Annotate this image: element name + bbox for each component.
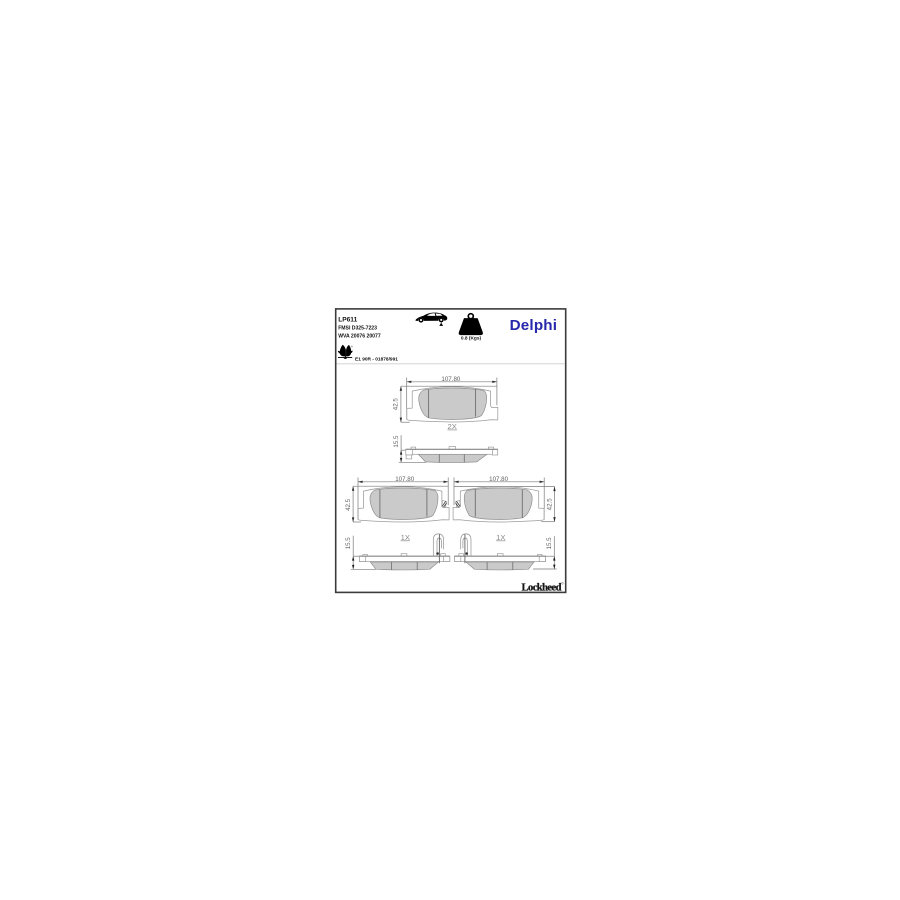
svg-text:FMSI D325-7223: FMSI D325-7223 [338, 326, 377, 332]
svg-text:E1 90R - 01878/991: E1 90R - 01878/991 [355, 357, 398, 363]
svg-text:42.5: 42.5 [546, 498, 553, 511]
svg-text:15.5: 15.5 [393, 435, 400, 448]
svg-text:15.5: 15.5 [345, 537, 352, 550]
svg-text:42.5: 42.5 [392, 398, 399, 411]
svg-text:LP611: LP611 [338, 317, 357, 324]
svg-text:0.8 (Kgs): 0.8 (Kgs) [461, 335, 482, 341]
svg-text:15.5: 15.5 [546, 537, 553, 550]
svg-text:Delphi: Delphi [510, 317, 558, 334]
svg-text:107.80: 107.80 [489, 476, 508, 483]
svg-text:WVA 20076 20077: WVA 20076 20077 [338, 333, 381, 339]
svg-text:Lockheed: Lockheed [522, 582, 562, 593]
svg-text:42.5: 42.5 [345, 498, 352, 511]
